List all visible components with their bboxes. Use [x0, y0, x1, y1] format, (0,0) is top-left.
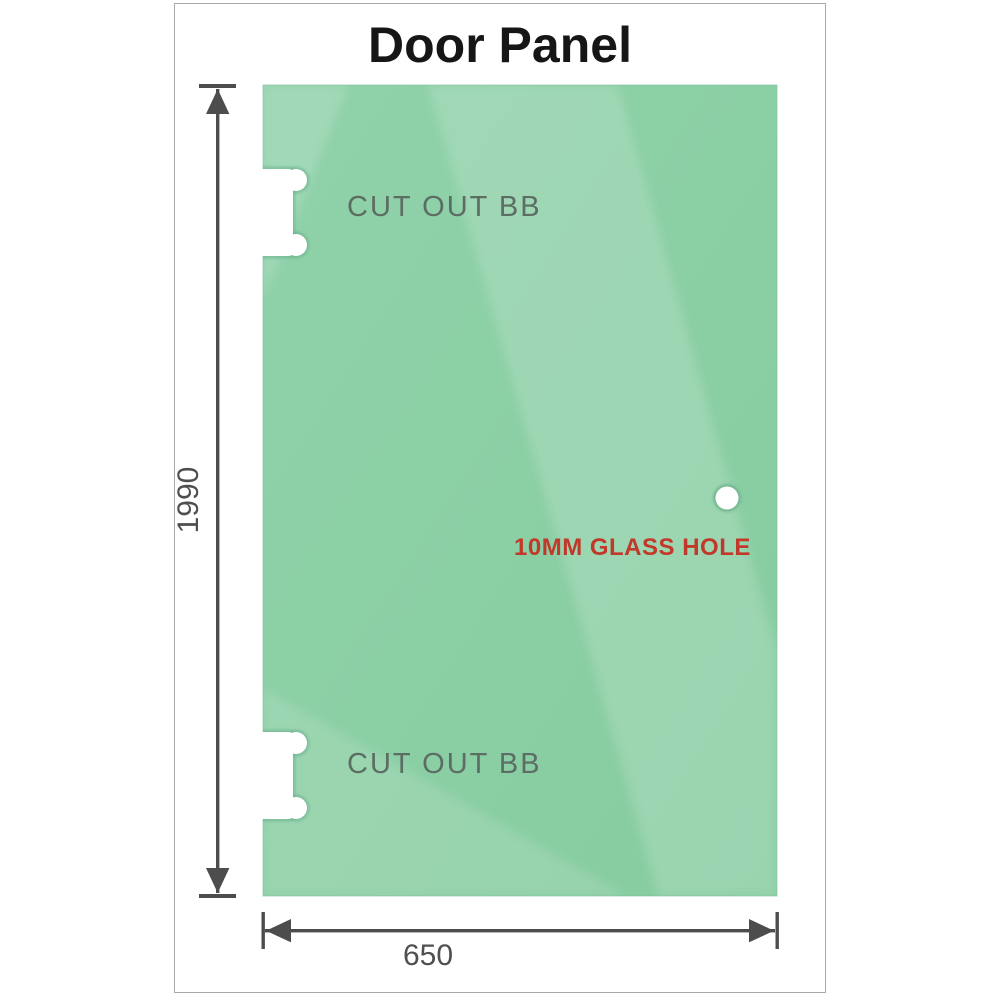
width-dimension-arrow: [262, 912, 779, 949]
glass-hole-label: 10MM GLASS HOLE: [514, 534, 751, 562]
door-panel-diagram: Door Panel CUT OUT BB CUT OUT BB 10MM GL…: [0, 0, 1000, 1000]
width-dimension-value: 650: [378, 939, 478, 973]
cutout-top-label: CUT OUT BB: [347, 191, 542, 224]
page-title: Door Panel: [174, 16, 826, 74]
cutout-bottom-label: CUT OUT BB: [347, 748, 542, 781]
height-dimension-value: 1990: [174, 440, 204, 560]
diagram-canvas: [0, 0, 1000, 1000]
glass-hole: [713, 484, 741, 512]
